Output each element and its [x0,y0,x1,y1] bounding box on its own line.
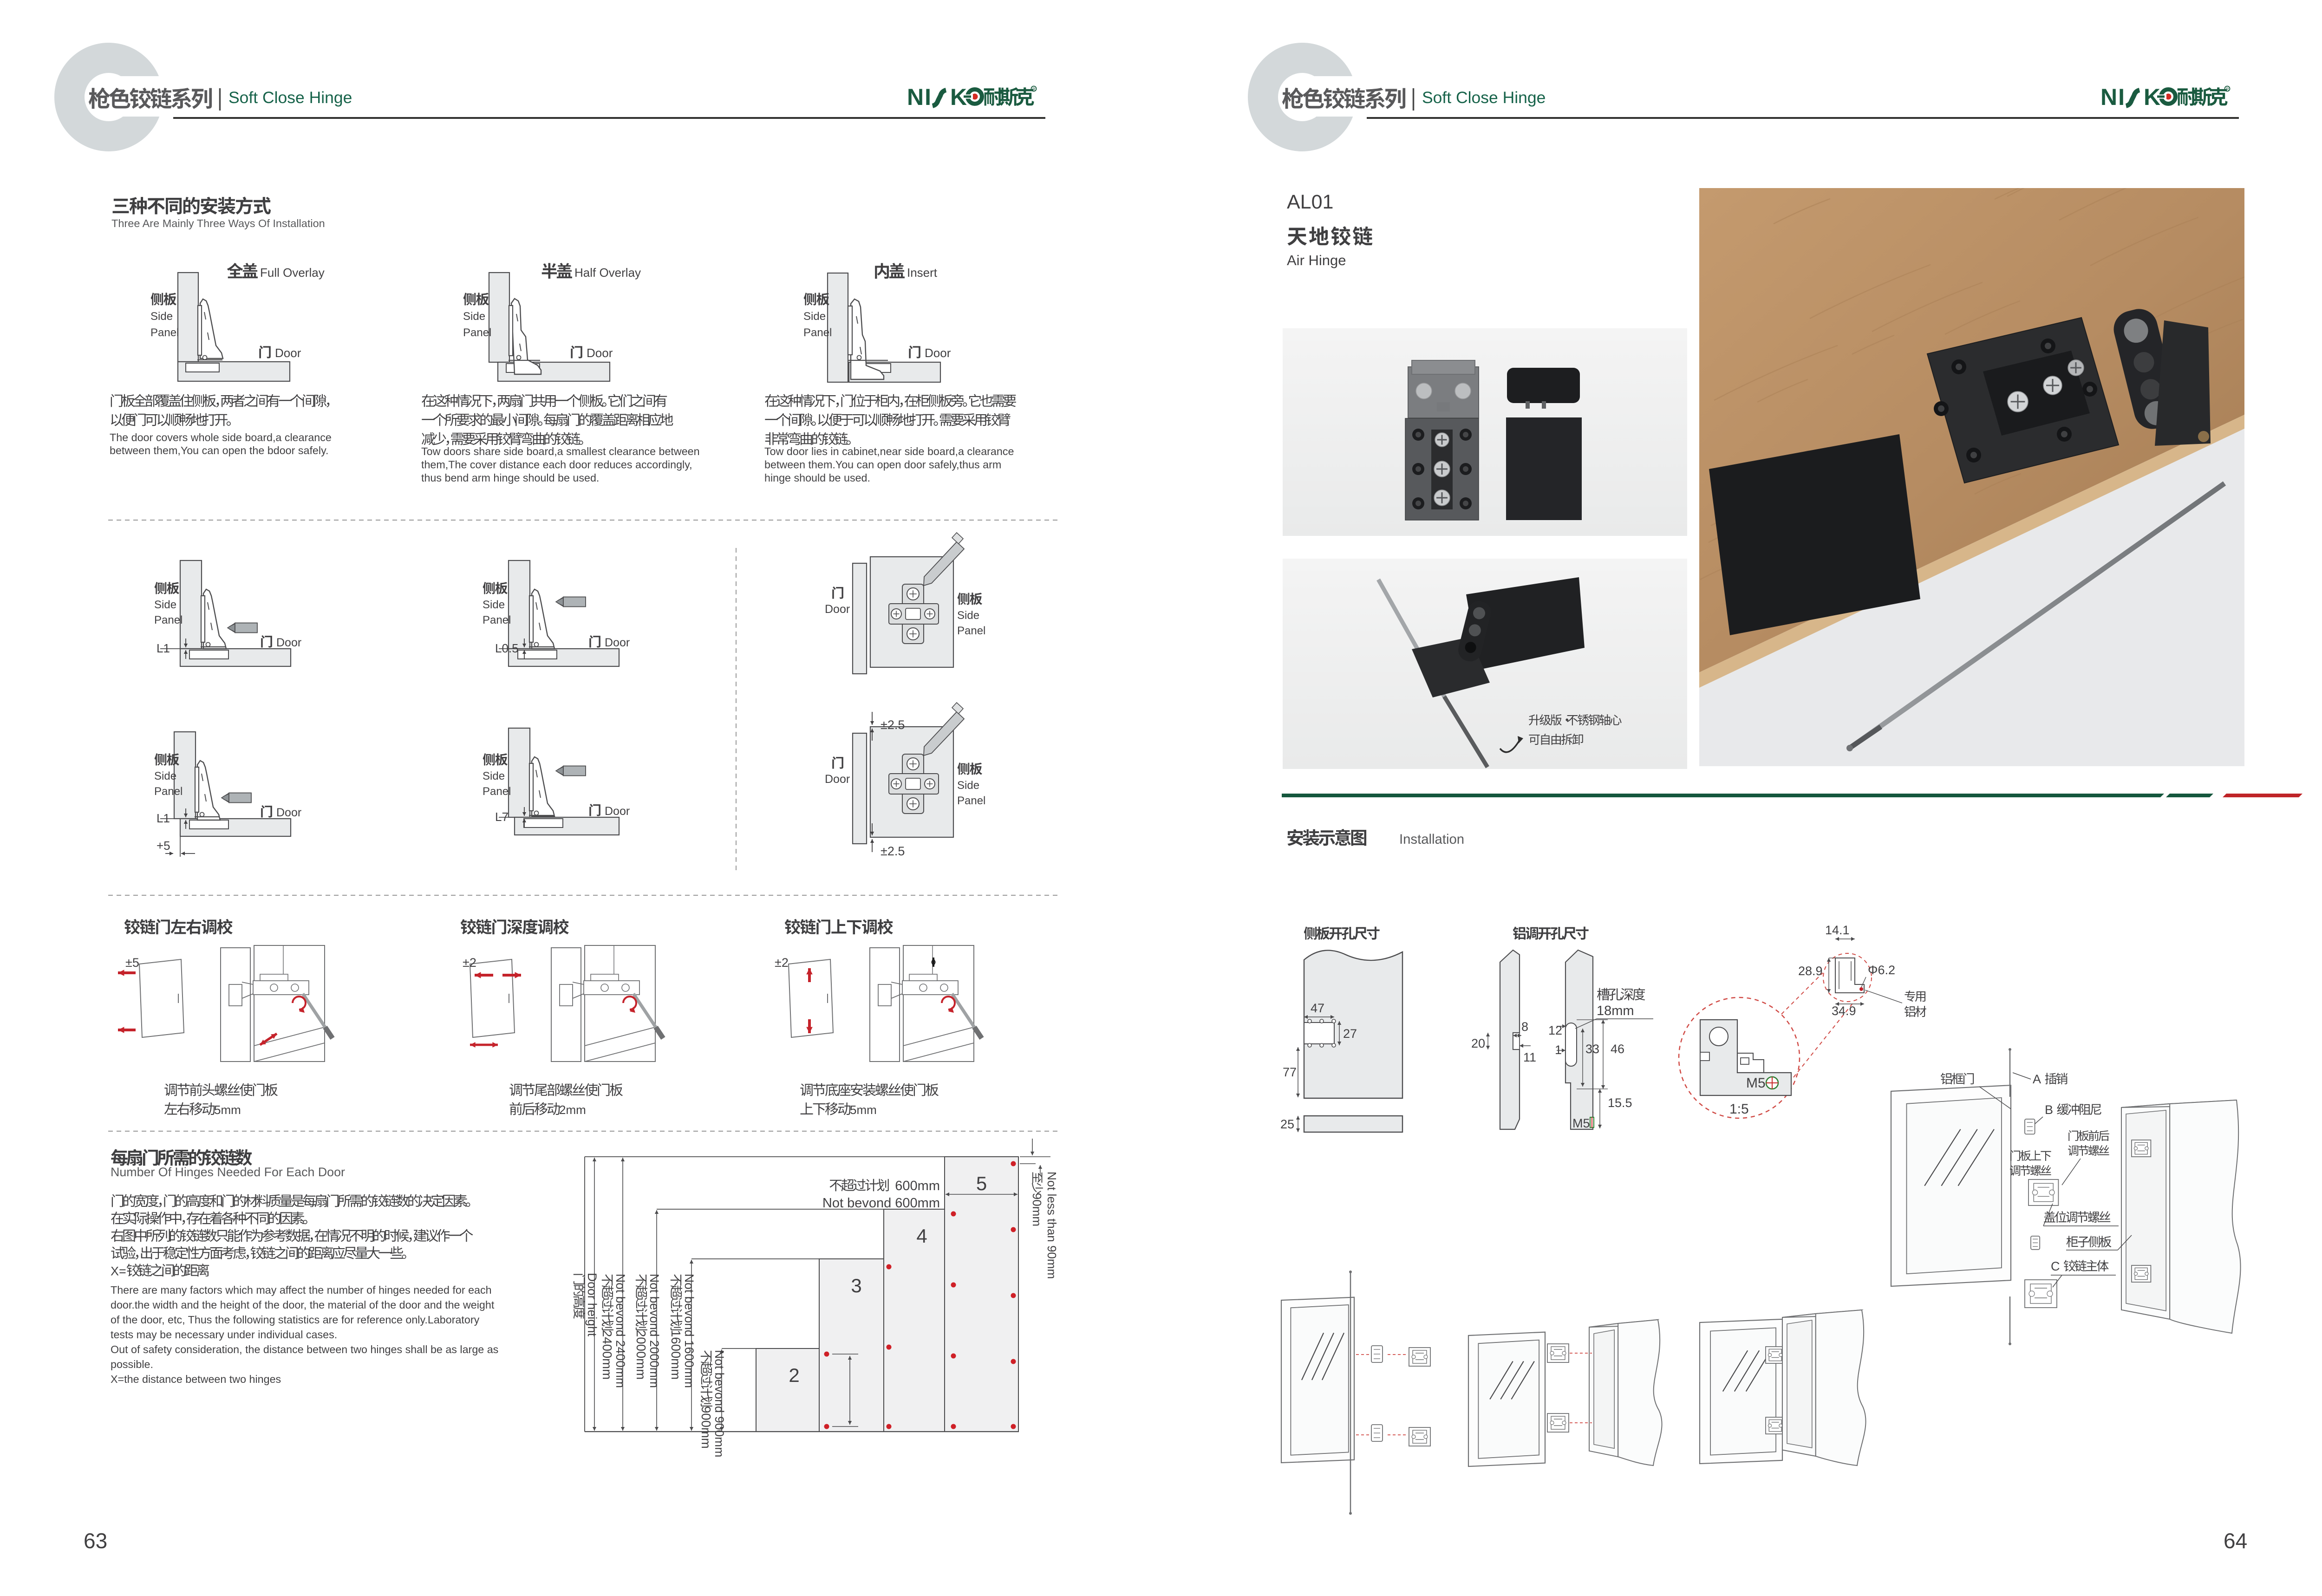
svg-text:±2.5: ±2.5 [881,844,905,858]
svg-text:Not less than 90mm: Not less than 90mm [1045,1172,1059,1279]
svg-text:L1: L1 [157,811,170,825]
svg-text:15.5: 15.5 [1608,1096,1632,1110]
svg-text:Door: Door [605,805,630,818]
svg-text:2400mm: 2400mm [600,1330,614,1380]
svg-text:Side: Side [483,599,505,611]
svg-text:door.the width and the height: door.the width and the height of the doo… [111,1299,495,1311]
svg-text:±2: ±2 [463,956,476,970]
svg-text:5mm: 5mm [850,1103,877,1117]
svg-text:+5: +5 [157,839,170,853]
svg-text:Not bevond 900mm: Not bevond 900mm [712,1350,726,1457]
svg-text:Door: Door [605,636,630,649]
svg-text:Number Of Hinges Needed For Ea: Number Of Hinges Needed For Each Door [111,1165,345,1179]
svg-text:33: 33 [1585,1042,1599,1056]
svg-text:±2.5: ±2.5 [881,718,905,732]
svg-text:between them.You can open door: between them.You can open door safely,th… [764,459,1001,471]
svg-text:28.9: 28.9 [1798,964,1823,978]
svg-text:Door: Door [925,346,951,360]
svg-text:600mm: 600mm [895,1179,940,1193]
svg-text:64: 64 [2224,1529,2247,1553]
svg-text:tests may be necessary under i: tests may be necessary under individual … [111,1329,337,1341]
svg-text:Out of safety consideration, t: Out of safety consideration, the distanc… [111,1343,498,1355]
svg-text:between them,You can open the: between them,You can open the bdoor safe… [110,444,328,456]
svg-text:them,The cover distance each d: them,The cover distance each door reduce… [421,459,692,471]
svg-text:Door: Door [276,806,301,819]
svg-text:Panel: Panel [957,795,985,807]
svg-text:of the door, etc, Thus the fol: of the door, etc, Thus the following sta… [111,1314,480,1326]
svg-text:5: 5 [976,1173,987,1194]
svg-text:1:5: 1:5 [1729,1101,1749,1117]
svg-text:L0.5: L0.5 [495,641,519,655]
svg-text:1: 1 [1555,1043,1562,1057]
svg-text:thus bend arm hinge should be: thus bend arm hinge should be used. [421,472,599,484]
svg-text:possible.: possible. [111,1358,153,1370]
svg-text:77: 77 [1283,1065,1297,1079]
svg-text:1600mm: 1600mm [669,1330,683,1380]
svg-text:47: 47 [1311,1001,1324,1015]
svg-text:3: 3 [851,1275,861,1296]
svg-text:Three Are Mainly Three Ways Of: Three Are Mainly Three Ways Of Installat… [111,217,325,229]
svg-text:Panel: Panel [483,614,511,626]
svg-text:Door: Door [825,773,850,786]
svg-text:5mm: 5mm [214,1103,241,1117]
svg-text:Door: Door [275,346,301,360]
svg-text:Door: Door [276,636,301,649]
svg-text:±5: ±5 [125,956,139,970]
svg-text:R: R [2226,87,2229,91]
svg-text:±2: ±2 [775,956,789,970]
svg-text:Panel: Panel [463,326,491,339]
svg-text:Insert: Insert [907,266,938,280]
svg-text:R: R [1032,87,1036,91]
svg-text:M5: M5 [1572,1116,1590,1130]
svg-text:2000mm: 2000mm [634,1330,648,1380]
svg-text:Not bevond 2400mm: Not bevond 2400mm [613,1274,627,1388]
svg-text:34.9: 34.9 [1832,1004,1856,1018]
svg-text:M5: M5 [1746,1075,1766,1091]
svg-text:X=: X= [111,1264,126,1278]
svg-text:46: 46 [1611,1042,1624,1056]
svg-text:63: 63 [84,1529,107,1553]
svg-text:Side: Side [957,609,979,622]
svg-text:4: 4 [916,1225,927,1247]
svg-text:20: 20 [1471,1036,1485,1050]
svg-text:Φ6.2: Φ6.2 [1868,963,1895,977]
svg-text:Panel: Panel [154,614,183,626]
svg-text:Soft Close Hinge: Soft Close Hinge [228,88,352,107]
svg-text:90mm: 90mm [1030,1193,1044,1226]
svg-text:Full Overlay: Full Overlay [260,266,325,280]
svg-text:Side: Side [150,310,173,323]
svg-text:Soft Close Hinge: Soft Close Hinge [1422,88,1546,107]
svg-text:8: 8 [1521,1020,1528,1034]
svg-text:Side: Side [154,599,176,611]
svg-text:C: C [2051,1259,2060,1273]
svg-text:Door: Door [825,603,850,616]
svg-text:Door height: Door height [585,1273,599,1337]
svg-text:11: 11 [1523,1050,1536,1064]
svg-text:12: 12 [1548,1023,1562,1037]
svg-text:Not bevond 1600mm: Not bevond 1600mm [682,1274,696,1388]
svg-text:L1: L1 [157,641,170,655]
svg-text:900mm: 900mm [699,1406,713,1449]
svg-text:Panel: Panel [957,625,985,637]
svg-text:18mm: 18mm [1597,1003,1634,1018]
svg-text:Panel: Panel [803,326,832,339]
svg-text:Tow doors share side board,a s: Tow doors share side board,a smallest cl… [421,445,700,457]
svg-text:Panel: Panel [483,785,511,798]
svg-text:There are many factors which m: There are many factors which may affect … [111,1284,492,1296]
svg-text:Panel: Panel [154,785,183,798]
svg-text:27: 27 [1343,1027,1357,1041]
svg-text:NI: NI [907,84,932,110]
svg-text:Half Overlay: Half Overlay [574,266,641,280]
svg-text:Not bevond 600mm: Not bevond 600mm [822,1196,940,1211]
svg-text:Panel: Panel [150,326,179,339]
svg-text:Installation: Installation [1399,832,1464,847]
svg-text:B: B [2045,1103,2053,1117]
svg-text:Side: Side [483,770,505,782]
svg-text:Tow door lies in cabinet,near: Tow door lies in cabinet,near side board… [764,445,1014,457]
svg-text:2mm: 2mm [559,1103,586,1117]
svg-text:NI: NI [2100,84,2126,110]
svg-text:L7: L7 [495,810,509,824]
svg-text:14.1: 14.1 [1825,923,1850,937]
svg-text:2: 2 [789,1364,799,1386]
svg-text:A: A [2033,1072,2041,1086]
svg-text:The door covers whole side boa: The door covers whole side board,a clear… [110,431,332,443]
svg-text:Side: Side [957,779,979,792]
svg-text:Side: Side [463,310,485,323]
svg-text:Not bevond 2000mm: Not bevond 2000mm [647,1274,661,1388]
svg-text:Side: Side [154,770,176,782]
svg-text:Door: Door [587,346,613,360]
svg-text:25: 25 [1280,1117,1294,1131]
svg-text:Air Hinge: Air Hinge [1287,252,1346,268]
svg-text:Side: Side [803,310,826,323]
svg-text:AL01: AL01 [1287,191,1333,213]
svg-text:hinge should be used.: hinge should be used. [764,472,870,484]
svg-text:X=the distance between two hin: X=the distance between two hinges [111,1373,281,1385]
